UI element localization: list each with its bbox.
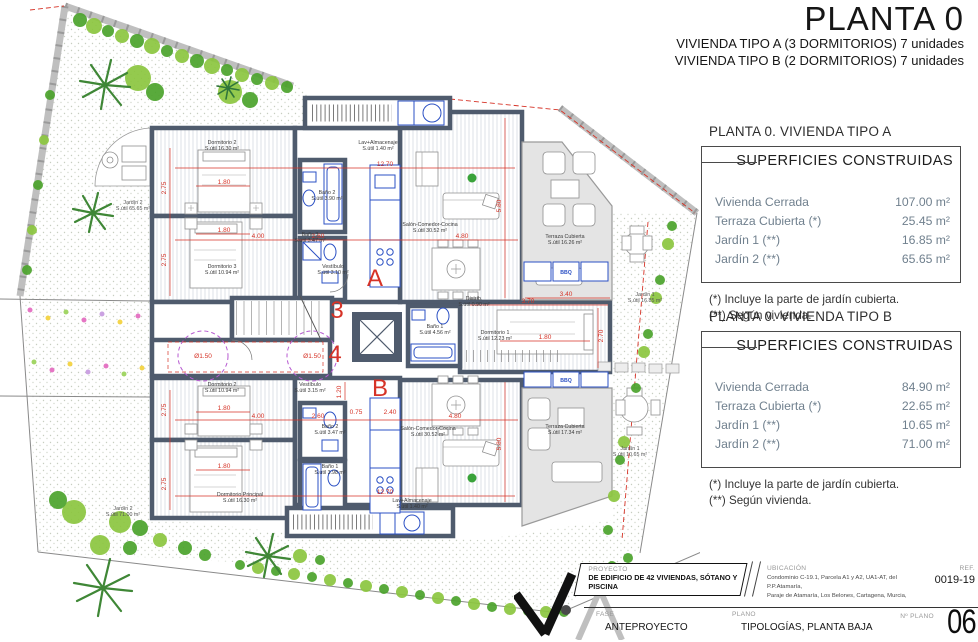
table-row: Terraza Cubierta (*)25.45 m²: [702, 212, 960, 231]
svg-text:1.20: 1.20: [336, 385, 343, 398]
svg-text:12.70: 12.70: [377, 489, 394, 496]
svg-text:2.70: 2.70: [598, 329, 605, 342]
tipo-a-panel: PLANTA 0. VIVIENDA TIPO A SUPERFICIES CO…: [701, 124, 961, 325]
svg-text:2.75: 2.75: [161, 181, 168, 194]
fase-block: FASE ANTEPROYECTO: [596, 611, 688, 633]
svg-text:S.útil 10.94 m²: S.útil 10.94 m²: [205, 388, 239, 394]
row-value: 22.65 m²: [902, 397, 950, 416]
row-value: 107.00 m²: [895, 193, 950, 212]
svg-text:S.útil 3.47 m²: S.útil 3.47 m²: [314, 430, 345, 436]
titleblock-divider: [584, 607, 978, 608]
svg-text:0.75: 0.75: [350, 409, 363, 416]
svg-text:5.80: 5.80: [496, 199, 503, 212]
type-a-subtitle: VIVIENDA TIPO A (3 DORMITORIOS) 7 unidad…: [675, 36, 964, 52]
svg-text:12.70: 12.70: [377, 161, 394, 168]
svg-text:S.útil 17.34 m²: S.útil 17.34 m²: [548, 430, 582, 436]
turning-circle-label: Ø1.50: [303, 353, 321, 360]
svg-text:3.70: 3.70: [522, 298, 535, 305]
svg-text:S.útil 71.00 m²: S.útil 71.00 m²: [106, 512, 140, 518]
svg-text:2.60: 2.60: [312, 413, 325, 420]
row-value: 71.00 m²: [902, 435, 950, 454]
table-row: Vivienda Cerrada107.00 m²: [702, 193, 960, 212]
svg-text:S.útil 0.90 m²: S.útil 0.90 m²: [458, 302, 489, 308]
plano-block: PLANO TIPOLOGÍAS, PLANTA BAJA: [732, 611, 873, 633]
svg-text:2.75: 2.75: [161, 253, 168, 266]
svg-text:S.útil 16.85 m²: S.útil 16.85 m²: [628, 298, 662, 304]
drawing-sheet: { "title":{ "main":"PLANTA 0", "sub1":"V…: [0, 0, 978, 640]
row-label: Terraza Cubierta (*): [715, 397, 821, 416]
row-label: Jardín 2 (**): [715, 250, 780, 269]
num-plano-label: Nº PLANO: [900, 613, 934, 620]
svg-text:4.00: 4.00: [252, 233, 265, 240]
svg-text:4.00: 4.00: [252, 413, 265, 420]
ubicacion-line: Condominio C-19.1, Parcela A1 y A2, UA1-…: [767, 574, 922, 592]
ubicacion-line: Paraje de Atamaría, Los Belones, Cartage…: [767, 592, 922, 601]
svg-text:S.útil 3.90 m²: S.útil 3.90 m²: [311, 196, 342, 202]
bbq-label: BBQ: [560, 378, 572, 384]
note-line: (*) Incluye la parte de jardín cubierta.: [709, 292, 961, 309]
ref-label: REF.: [935, 565, 975, 572]
table-row: Jardín 1 (**)10.65 m²: [702, 416, 960, 435]
sheet-title: PLANTA 0 VIVIENDA TIPO A (3 DORMITORIOS)…: [675, 2, 964, 68]
svg-text:S.útil 30.52 m²: S.útil 30.52 m²: [413, 228, 447, 234]
note-line: (**) Según vivienda.: [709, 493, 961, 510]
plano-value: TIPOLOGÍAS, PLANTA BAJA: [732, 622, 873, 633]
row-value: 65.65 m²: [902, 250, 950, 269]
ubicacion-block: UBICACIÓN Condominio C-19.1, Parcela A1 …: [767, 565, 922, 601]
table-row: Terraza Cubierta (*)22.65 m²: [702, 397, 960, 416]
row-label: Vivienda Cerrada: [715, 378, 809, 397]
tipo-a-heading: PLANTA 0. VIVIENDA TIPO A: [701, 124, 961, 139]
row-label: Jardín 1 (**): [715, 231, 780, 250]
proyecto-box: PROYECTO DE EDIFICIO DE 42 VIVIENDAS, SÓ…: [573, 563, 747, 596]
row-value: 16.85 m²: [902, 231, 950, 250]
plant-icon: [468, 174, 477, 183]
row-label: Jardín 1 (**): [715, 416, 780, 435]
svg-text:S.útil 3.98 m²: S.útil 3.98 m²: [314, 470, 345, 476]
svg-text:1.80: 1.80: [218, 405, 231, 412]
svg-text:S.útil 65.65 m²: S.útil 65.65 m²: [116, 206, 150, 212]
svg-text:1.80: 1.80: [539, 334, 552, 341]
note-line: (*) Incluye la parte de jardín cubierta.: [709, 477, 961, 494]
svg-text:3.40: 3.40: [560, 291, 573, 298]
table-row: Vivienda Cerrada84.90 m²: [702, 378, 960, 397]
title-block: PROYECTO DE EDIFICIO DE 42 VIVIENDAS, SÓ…: [520, 560, 978, 640]
svg-text:2.75: 2.75: [161, 403, 168, 416]
unit-b-marker: B: [372, 375, 388, 402]
row-label: Jardín 2 (**): [715, 435, 780, 454]
svg-text:4.80: 4.80: [456, 233, 469, 240]
terrace-b: BBQ: [522, 372, 612, 526]
ref-number: 0019-19: [935, 574, 975, 586]
svg-text:S.útil 1.40 m²: S.útil 1.40 m²: [362, 146, 393, 152]
plant-icon: [468, 474, 477, 483]
row-label: Vivienda Cerrada: [715, 193, 809, 212]
svg-text:5.80: 5.80: [496, 437, 503, 450]
sheet-number: 06: [947, 603, 976, 642]
divider-slash: [752, 561, 761, 596]
turning-circle-label: Ø1.50: [194, 353, 212, 360]
svg-text:S.útil 3.15 m²: S.útil 3.15 m²: [294, 388, 325, 394]
svg-text:4.80: 4.80: [449, 413, 462, 420]
tipo-b-table-title: SUPERFICIES CONSTRUIDAS: [702, 338, 960, 354]
svg-text:S.útil 4.56 m²: S.útil 4.56 m²: [419, 330, 450, 336]
fase-label: FASE: [596, 611, 688, 618]
ubicacion-label: UBICACIÓN: [767, 565, 922, 572]
svg-text:S.útil 3.10 m²: S.útil 3.10 m²: [317, 270, 348, 276]
svg-text:S.útil 3.47 m²: S.útil 3.47 m²: [294, 238, 325, 244]
svg-text:S.útil 1.40 m²: S.útil 1.40 m²: [396, 504, 427, 510]
row-label: Terraza Cubierta (*): [715, 212, 821, 231]
table-row: Jardín 2 (**)71.00 m²: [702, 435, 960, 454]
plano-label: PLANO: [732, 611, 873, 618]
svg-text:S.útil 16.30 m²: S.útil 16.30 m²: [205, 146, 239, 152]
type-b-subtitle: VIVIENDA TIPO B (2 DORMITORIOS) 7 unidad…: [675, 53, 964, 69]
floor-plan-drawing: BBQ: [0, 0, 700, 640]
table-row: Jardín 1 (**)16.85 m²: [702, 231, 960, 250]
tipo-b-heading: PLANTA 0. VIVIENDA TIPO B: [701, 309, 961, 324]
proyecto-label: PROYECTO: [588, 566, 741, 573]
svg-text:1.80: 1.80: [218, 463, 231, 470]
svg-text:S.útil 10.65 m²: S.útil 10.65 m²: [613, 452, 647, 458]
svg-text:2.40: 2.40: [384, 409, 397, 416]
row-value: 25.45 m²: [902, 212, 950, 231]
bbq-label: BBQ: [560, 270, 572, 276]
table-row: Jardín 2 (**)65.65 m²: [702, 250, 960, 269]
svg-text:S.útil 30.52 m²: S.útil 30.52 m²: [411, 432, 445, 438]
terrace-a: BBQ: [522, 142, 612, 300]
portal-4-marker: 4: [328, 341, 341, 368]
proyecto-text: DE EDIFICIO DE 42 VIVIENDAS, SÓTANO Y PI…: [588, 573, 741, 591]
tipo-a-surface-table: SUPERFICIES CONSTRUIDAS Vivienda Cerrada…: [701, 146, 961, 283]
row-value: 10.65 m²: [902, 416, 950, 435]
unit-a-marker: A: [367, 265, 383, 292]
svg-text:S.útil 12.23 m²: S.útil 12.23 m²: [478, 336, 512, 342]
svg-text:S.útil 16.30 m²: S.útil 16.30 m²: [223, 498, 257, 504]
page-title: PLANTA 0: [675, 2, 964, 35]
svg-text:S.útil 16.26 m²: S.útil 16.26 m²: [548, 240, 582, 246]
svg-text:1.80: 1.80: [218, 227, 231, 234]
fase-value: ANTEPROYECTO: [596, 622, 688, 633]
tipo-b-notes: (*) Incluye la parte de jardín cubierta.…: [701, 477, 961, 511]
tipo-a-table-title: SUPERFICIES CONSTRUIDAS: [702, 153, 960, 169]
svg-text:2.75: 2.75: [161, 477, 168, 490]
tipo-b-surface-table: SUPERFICIES CONSTRUIDAS Vivienda Cerrada…: [701, 331, 961, 468]
ref-block: REF. 0019-19: [935, 565, 975, 586]
svg-text:S.útil 10.94 m²: S.útil 10.94 m²: [205, 270, 239, 276]
tipo-b-panel: PLANTA 0. VIVIENDA TIPO B SUPERFICIES CO…: [701, 309, 961, 510]
svg-text:1.80: 1.80: [218, 179, 231, 186]
row-value: 84.90 m²: [902, 378, 950, 397]
portal-3-marker: 3: [330, 297, 343, 324]
